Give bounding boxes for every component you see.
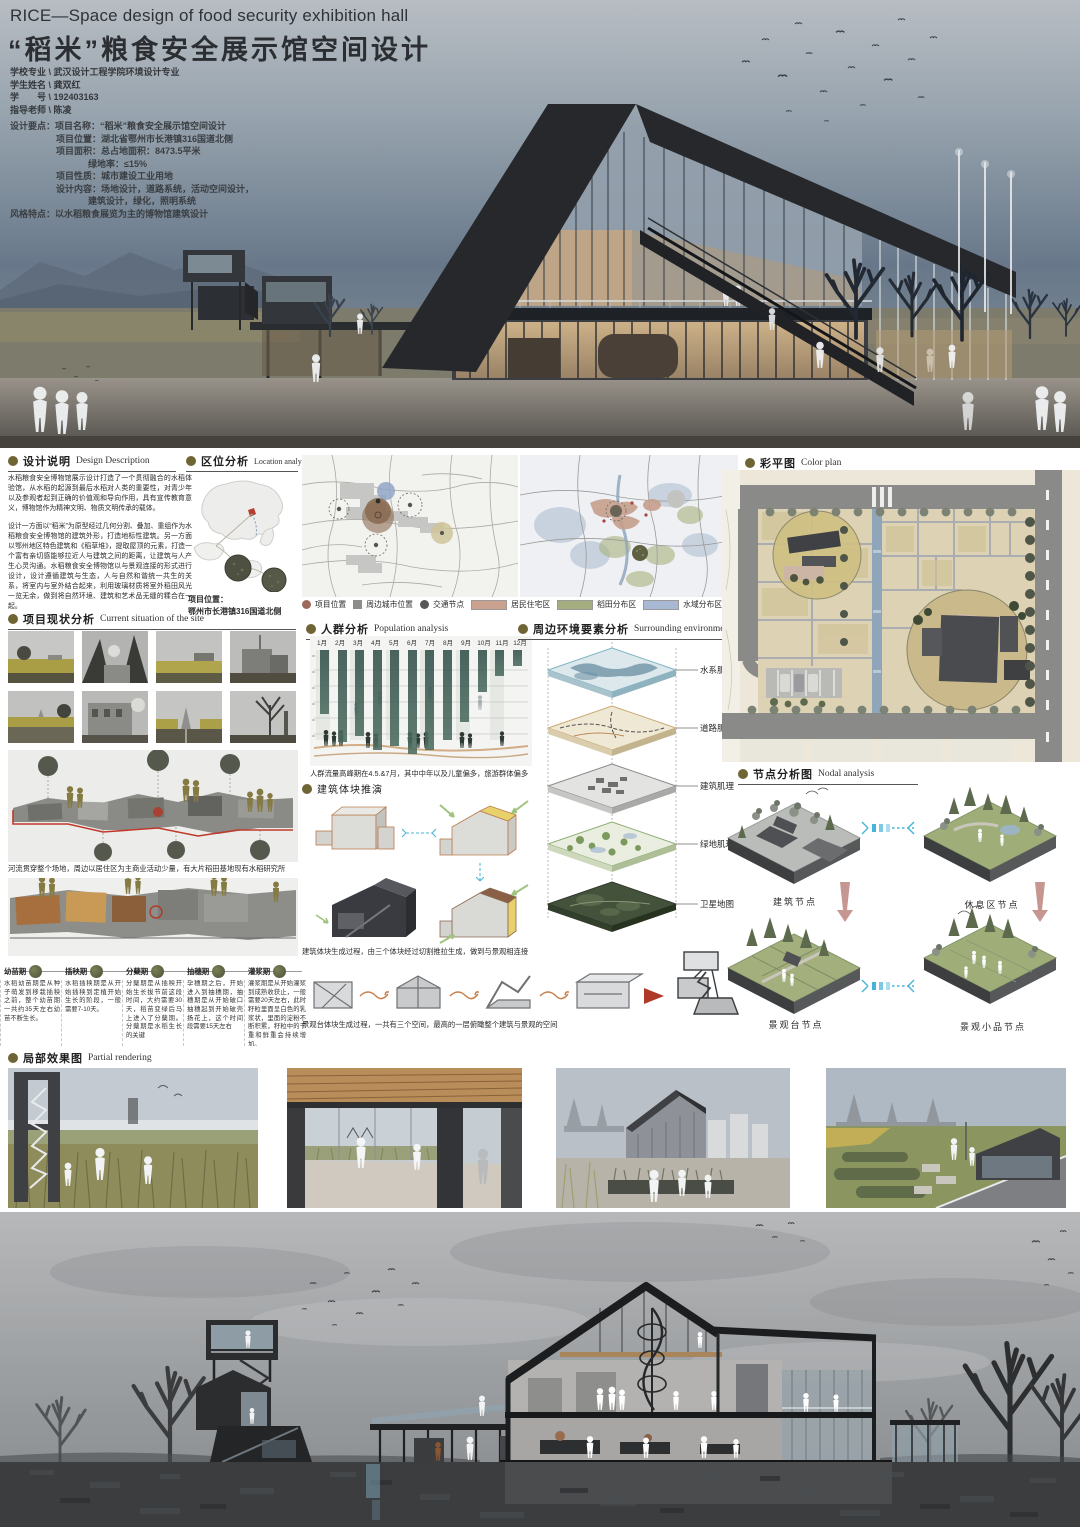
legend-swatch: [302, 600, 311, 609]
growth-stage-dot-icon: [212, 965, 225, 978]
section-nodal-analysis: 节点分析图 Nodal analysis: [738, 766, 918, 785]
link-arrow-horizontal: [862, 980, 914, 992]
section-title-zh: 项目现状分析: [23, 611, 95, 627]
section-dot-icon: [738, 769, 748, 779]
section-design-description: 设计说明 Design Description: [8, 453, 176, 472]
section-dot-icon: [302, 784, 312, 794]
node-label: 景观小品节点: [948, 1020, 1038, 1033]
section-partial-rendering: 局部效果图 Partial rendering: [8, 1050, 193, 1069]
growth-stage-title: 抽穗期: [187, 966, 209, 977]
month-bar: [460, 650, 469, 722]
month-bar: [373, 650, 382, 750]
city-position-map: [302, 455, 518, 597]
growth-stage-text: 灌浆期是从开始灌浆到成熟收获止，一般需要20天左右，此时籽粒里面呈白色的乳浆状，…: [244, 980, 306, 1046]
growth-stage-text: 分蘖期是从插秧开始生长拔节前这段时间，大约需要30天，稻苗变绿后马上进入了分蘖期…: [122, 980, 182, 1046]
section-title-zh: 节点分析图: [753, 766, 813, 782]
presentation-board: RICE—Space design of food security exhib…: [0, 0, 1080, 1527]
month-bar: [495, 650, 504, 676]
site-photos-grid: [8, 631, 298, 745]
node-building: [728, 788, 860, 884]
site-panorama-warm: [8, 878, 298, 956]
month-bar: [320, 650, 329, 714]
month-bar: [443, 650, 452, 740]
location-note-value: 鄂州市长港镇316国道北侧: [188, 606, 300, 618]
node-landscape-feature: [924, 906, 1056, 1004]
site-panorama-gray: [8, 750, 298, 862]
right-glass-box: [890, 1420, 960, 1462]
brief-line: 建筑设计，绿化，照明系统: [10, 195, 254, 208]
color-site-plan: [722, 470, 1080, 762]
massing-diagrams: [302, 797, 540, 945]
section-perspective-rendering: [0, 1212, 1080, 1527]
title-chinese: “稻米”粮食安全展示馆空间设计: [8, 28, 431, 67]
section-title-en: Partial rendering: [88, 1053, 152, 1063]
growth-stage-dot-icon: [29, 965, 42, 978]
growth-stage-dot-icon: [273, 965, 286, 978]
growth-stage-dot-icon: [151, 965, 164, 978]
section-title-zh: 建筑体块推演: [317, 781, 383, 796]
growth-stage-text: 孕穗期之后，开始进入到抽穗期，抽穗期是从开始破口抽穗起到开始破壳扬花上，这个时间…: [183, 980, 243, 1046]
node-label: 建筑节点: [760, 895, 830, 908]
site-photo: [8, 631, 296, 743]
landuse-map: [520, 455, 738, 597]
legend-swatch: [471, 600, 507, 610]
rice-growth-timeline: 幼苗期 水稻幼苗期是从种子萌发到移栽插秧之前，整个幼苗期一共约35天左右幼苗不断…: [4, 962, 304, 1050]
legend-item: 稻田分布区: [557, 599, 636, 610]
legend-swatch: [420, 600, 429, 609]
brief-line: 设计内容：场地设计，道路系统，活动空间设计，: [10, 183, 254, 196]
growth-stage-title: 插秧期: [65, 966, 87, 977]
growth-stage-dot-icon: [90, 965, 103, 978]
section-dot-icon: [518, 624, 528, 634]
population-flow-chart: 1月2月3月4月5月6月7月8月9月10月11月12月: [310, 636, 532, 766]
section-title-en: Design Description: [76, 456, 150, 466]
brief-line: 项目位置：湖北省鄂州市长港镇316国道北侧: [10, 133, 254, 146]
month-bar: [390, 650, 399, 746]
student-info-block: 学校专业 \ 武汉设计工程学院环境设计专业 学生姓名 \ 龚双红 学 号 \ 1…: [10, 66, 180, 116]
brief-line: 项目面积：总占地面积：8473.5平米: [10, 145, 254, 158]
section-dot-icon: [8, 614, 18, 624]
section-dot-icon: [745, 458, 755, 468]
node-viewing-platform: [728, 917, 860, 1014]
partial-render-building-path: [556, 1068, 790, 1208]
section-title-en: Color plan: [801, 458, 841, 468]
growth-stage-title: 幼苗期: [4, 966, 26, 977]
node-rest-area: [924, 787, 1056, 883]
growth-stage-text: 水稻插秧期是从开始插秧到定植开始生长的阶段，一般需要7-10天。: [61, 980, 121, 1046]
section-title-en: Population analysis: [374, 624, 448, 634]
legend-item: 周边城市位置: [353, 599, 413, 610]
legend-swatch: [353, 600, 362, 609]
brief-line: 风格特点：以水稻粮食展览为主的博物馆建筑设计: [10, 208, 254, 221]
red-arrow-icon: [644, 988, 664, 1004]
brief-line: 设计要点：项目名称：“稻米”粮食安全展示馆空间设计: [10, 120, 254, 133]
section-title-zh: 彩平图: [760, 455, 796, 471]
legend-swatch: [557, 600, 593, 610]
section-dot-icon: [306, 624, 316, 634]
partial-render-pavilion-interior: [287, 1068, 522, 1208]
month-bar: [513, 650, 522, 666]
legend-item: 居民住宅区: [471, 599, 550, 610]
month-axis: 1月2月3月4月5月6月7月8月9月10月11月12月: [310, 636, 532, 647]
partial-render-rice-field-stair: [8, 1068, 258, 1208]
month-bar: [425, 650, 434, 750]
section-title-zh: 局部效果图: [23, 1050, 83, 1066]
legend-swatch: [643, 600, 679, 610]
section-title-zh: 设计说明: [23, 453, 71, 469]
water-mark: [366, 1464, 380, 1498]
title-english: RICE—Space design of food security exhib…: [10, 6, 408, 26]
section-dot-icon: [186, 456, 196, 466]
legend-item: 项目位置: [302, 599, 346, 610]
section-title-zh: 周边环境要素分析: [533, 621, 629, 637]
partial-render-rest-area: [826, 1068, 1066, 1208]
section-title-en: Nodal analysis: [818, 769, 874, 779]
brief-line: 绿地率：≤15%: [10, 158, 254, 171]
design-description-p2: 设计一方面以“稻米”为原型经过几何分割、叠加、重组作为水稻粮食安全博物馆的建筑外…: [8, 522, 192, 610]
legend-item: 交通节点: [420, 599, 464, 610]
section-title-zh: 人群分析: [321, 621, 369, 637]
design-description-p1: 水稻粮食安全博物馆展示设计打造了一个贯彻融合的水稻体验馆，从水稻的起源到最后水稻…: [8, 474, 192, 518]
node-label: 景观台节点: [756, 1018, 836, 1031]
platform-generation-sequence: [302, 948, 740, 1026]
design-brief-block: 设计要点：项目名称：“稻米”粮食安全展示馆空间设计 项目位置：湖北省鄂州市长港镇…: [10, 120, 254, 220]
link-arrow-horizontal: [862, 822, 914, 834]
china-location-map: [186, 470, 298, 592]
brief-line: 项目性质：城市建设工业用地: [10, 170, 254, 183]
info-line: 学校专业 \ 武汉设计工程学院环境设计专业: [10, 66, 180, 79]
section-dot-icon: [8, 456, 18, 466]
month-bar: [408, 650, 417, 754]
month-bar: [338, 650, 347, 742]
section-massing: 建筑体块推演: [302, 781, 452, 798]
month-bar: [355, 650, 364, 736]
node-label: 休息区节点: [952, 898, 1032, 911]
growth-stage-text: 水稻幼苗期是从种子萌发到移栽插秧之前，整个幼苗期一共约35天左右幼苗不断生长。: [0, 980, 60, 1046]
population-caption: 人群流量高峰期在4.5.&7月，其中中年以及儿童偏多，旅游群体偏多: [310, 769, 550, 779]
massing-caption-2: 景观台体块生成过程，一共有三个空间，最高的一层俯瞰整个建筑与景观的空间: [302, 1020, 632, 1030]
section-title-en: Surrounding environment: [634, 624, 732, 634]
info-line: 学生姓名 \ 龚双红: [10, 79, 180, 92]
site-caption: 河流贯穿整个场地，周边以居住区为主商业活动少量，有大片稻田基地现有水稻研究所: [8, 864, 304, 874]
location-note: 项目位置： 鄂州市长港镇316国道北侧: [188, 594, 300, 618]
growth-stage-title: 分蘖期: [126, 966, 148, 977]
month-bar: [478, 650, 487, 692]
map-legend: 项目位置 周边城市位置 交通节点 居民住宅区 稻田分布区 水域分布区: [302, 599, 740, 610]
location-note-label: 项目位置：: [188, 594, 300, 606]
section-dot-icon: [8, 1053, 18, 1063]
legend-item: 水域分布区: [643, 599, 722, 610]
section-title-zh: 区位分析: [201, 453, 249, 469]
info-line: 学 号 \ 192403163: [10, 91, 180, 104]
info-line: 指导老师 \ 陈凌: [10, 104, 180, 117]
growth-stage-title: 灌浆期: [248, 966, 270, 977]
